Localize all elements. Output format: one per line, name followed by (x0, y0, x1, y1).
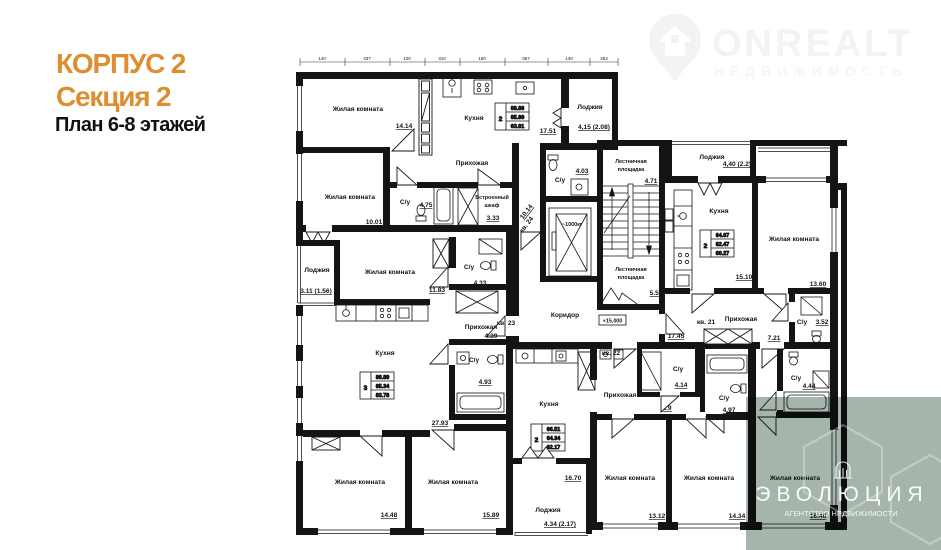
svg-text:План 6-8 этажей: План 6-8 этажей (55, 114, 205, 136)
svg-text:3.52: 3.52 (816, 319, 829, 326)
svg-text:3: 3 (364, 385, 368, 392)
svg-text:КОРПУС 2: КОРПУС 2 (56, 48, 186, 79)
svg-text:площадка: площадка (618, 275, 646, 281)
svg-text:13.12: 13.12 (649, 513, 666, 520)
svg-text:Жилая комната: Жилая комната (683, 475, 734, 482)
svg-text:62.47: 62.47 (716, 242, 730, 248)
svg-text:15.89: 15.89 (483, 512, 500, 519)
svg-text:С/у: С/у (555, 177, 566, 184)
svg-text:4.44: 4.44 (803, 383, 816, 390)
svg-text:С/у: С/у (797, 319, 808, 326)
svg-text:Кухня: Кухня (375, 350, 394, 357)
svg-text:Жилая комната: Жилая комната (364, 269, 415, 276)
svg-text:150: 150 (478, 56, 486, 61)
svg-text:64.34: 64.34 (547, 436, 561, 442)
svg-text:4.75: 4.75 (420, 202, 433, 209)
svg-text:85.34: 85.34 (376, 384, 390, 390)
svg-text:60.27: 60.27 (716, 251, 730, 257)
svg-text:С/у: С/у (464, 264, 475, 271)
svg-text:310: 310 (438, 56, 446, 61)
svg-text:27.93: 27.93 (432, 420, 449, 427)
svg-text:4.39: 4.39 (485, 333, 498, 340)
svg-text:~1000кг: ~1000кг (562, 222, 583, 228)
svg-text:Лестничная: Лестничная (615, 267, 646, 273)
svg-text:4.93: 4.93 (479, 379, 492, 386)
svg-text:337: 337 (363, 56, 371, 61)
svg-text:ЭВОЛЮЦИЯ: ЭВОЛЮЦИЯ (755, 483, 928, 506)
svg-text:2: 2 (499, 116, 503, 123)
svg-text:Жилая комната: Жилая комната (768, 236, 819, 243)
svg-text:4.97: 4.97 (723, 407, 736, 414)
svg-text:14.14: 14.14 (396, 123, 413, 130)
svg-text:2: 2 (704, 243, 708, 250)
svg-text:Жилая комната: Жилая комната (334, 479, 385, 486)
svg-text:Секция 2: Секция 2 (56, 81, 171, 112)
svg-text:16.70: 16.70 (565, 475, 582, 482)
svg-text:кв. 23: кв. 23 (497, 320, 516, 327)
svg-text:253: 253 (600, 56, 608, 61)
svg-text:15.10: 15.10 (736, 274, 753, 281)
svg-text:Жилая комната: Жилая комната (324, 194, 375, 201)
svg-text:120: 120 (403, 56, 411, 61)
svg-text:Лестничная: Лестничная (615, 159, 646, 165)
svg-text:14.48: 14.48 (381, 512, 398, 519)
svg-text:14.34: 14.34 (729, 513, 746, 520)
svg-text:Жилая комната: Жилая комната (332, 106, 383, 113)
svg-text:площадка: площадка (618, 167, 646, 173)
svg-text:4,40 (2.2): 4,40 (2.2) (723, 161, 751, 168)
svg-text:367: 367 (522, 56, 530, 61)
svg-text:63.91: 63.91 (511, 124, 525, 130)
svg-text:Жилая комната: Жилая комната (427, 479, 478, 486)
svg-text:Прихожая: Прихожая (725, 316, 758, 323)
svg-text:4,15 (2.08): 4,15 (2.08) (578, 124, 610, 131)
svg-text:3.33: 3.33 (487, 215, 500, 222)
svg-text:11.83: 11.83 (429, 287, 445, 294)
svg-text:Встроенный: Встроенный (475, 194, 509, 201)
svg-text:65.99: 65.99 (511, 115, 525, 121)
svg-text:Кухня: Кухня (539, 401, 558, 408)
svg-text:83.78: 83.78 (376, 393, 390, 399)
svg-text:С/у: С/у (469, 357, 480, 364)
svg-text:ONREALT: ONREALT (712, 23, 914, 65)
svg-text:НЕДВИЖИМОСТЬ: НЕДВИЖИМОСТЬ (714, 64, 908, 79)
svg-text:Кухня: Кухня (464, 115, 483, 122)
svg-text:АГЕНТСТВО НЕДВИЖИМОСТИ: АГЕНТСТВО НЕДВИЖИМОСТИ (784, 509, 897, 518)
svg-text:4.14: 4.14 (675, 382, 688, 389)
svg-text:17.51: 17.51 (540, 128, 557, 135)
svg-text:С/у: С/у (673, 366, 684, 373)
svg-text:7.21: 7.21 (768, 335, 781, 342)
svg-text:Лоджия: Лоджия (535, 507, 560, 514)
svg-text:140: 140 (565, 56, 573, 61)
svg-text:140: 140 (318, 56, 326, 61)
svg-text:С/у: С/у (400, 199, 411, 206)
svg-text:Прихожая: Прихожая (465, 324, 498, 331)
svg-text:5.55: 5.55 (650, 290, 663, 297)
svg-text:шкаф: шкаф (485, 202, 500, 209)
svg-text:17.45: 17.45 (668, 333, 685, 340)
svg-text:2: 2 (535, 437, 539, 444)
svg-text:+15,000: +15,000 (603, 319, 623, 325)
svg-text:кв. 21: кв. 21 (697, 319, 716, 326)
svg-text:С/у: С/у (791, 375, 802, 382)
svg-text:Кухня: Кухня (709, 208, 728, 215)
svg-text:66.51: 66.51 (547, 427, 561, 433)
svg-text:Лоджия: Лоджия (577, 104, 602, 111)
svg-text:3.11 (1.56): 3.11 (1.56) (300, 288, 332, 295)
svg-text:4.34 (2.17): 4.34 (2.17) (544, 521, 576, 528)
svg-text:С/у: С/у (719, 395, 730, 402)
svg-text:Прихожая: Прихожая (604, 392, 637, 399)
svg-text:Лоджия: Лоджия (304, 267, 329, 274)
svg-text:Жилая комната: Жилая комната (604, 475, 655, 482)
svg-text:13.60: 13.60 (810, 281, 827, 288)
svg-text:4.03: 4.03 (576, 168, 589, 175)
svg-text:Прихожая: Прихожая (456, 160, 489, 167)
svg-text:Коридор: Коридор (551, 312, 579, 319)
svg-text:68.86: 68.86 (511, 106, 525, 112)
svg-text:4.71: 4.71 (645, 178, 658, 185)
svg-text:Лоджия: Лоджия (699, 154, 724, 161)
svg-text:64.67: 64.67 (716, 233, 730, 239)
svg-text:86.89: 86.89 (376, 375, 390, 381)
svg-text:10.01: 10.01 (366, 219, 383, 226)
